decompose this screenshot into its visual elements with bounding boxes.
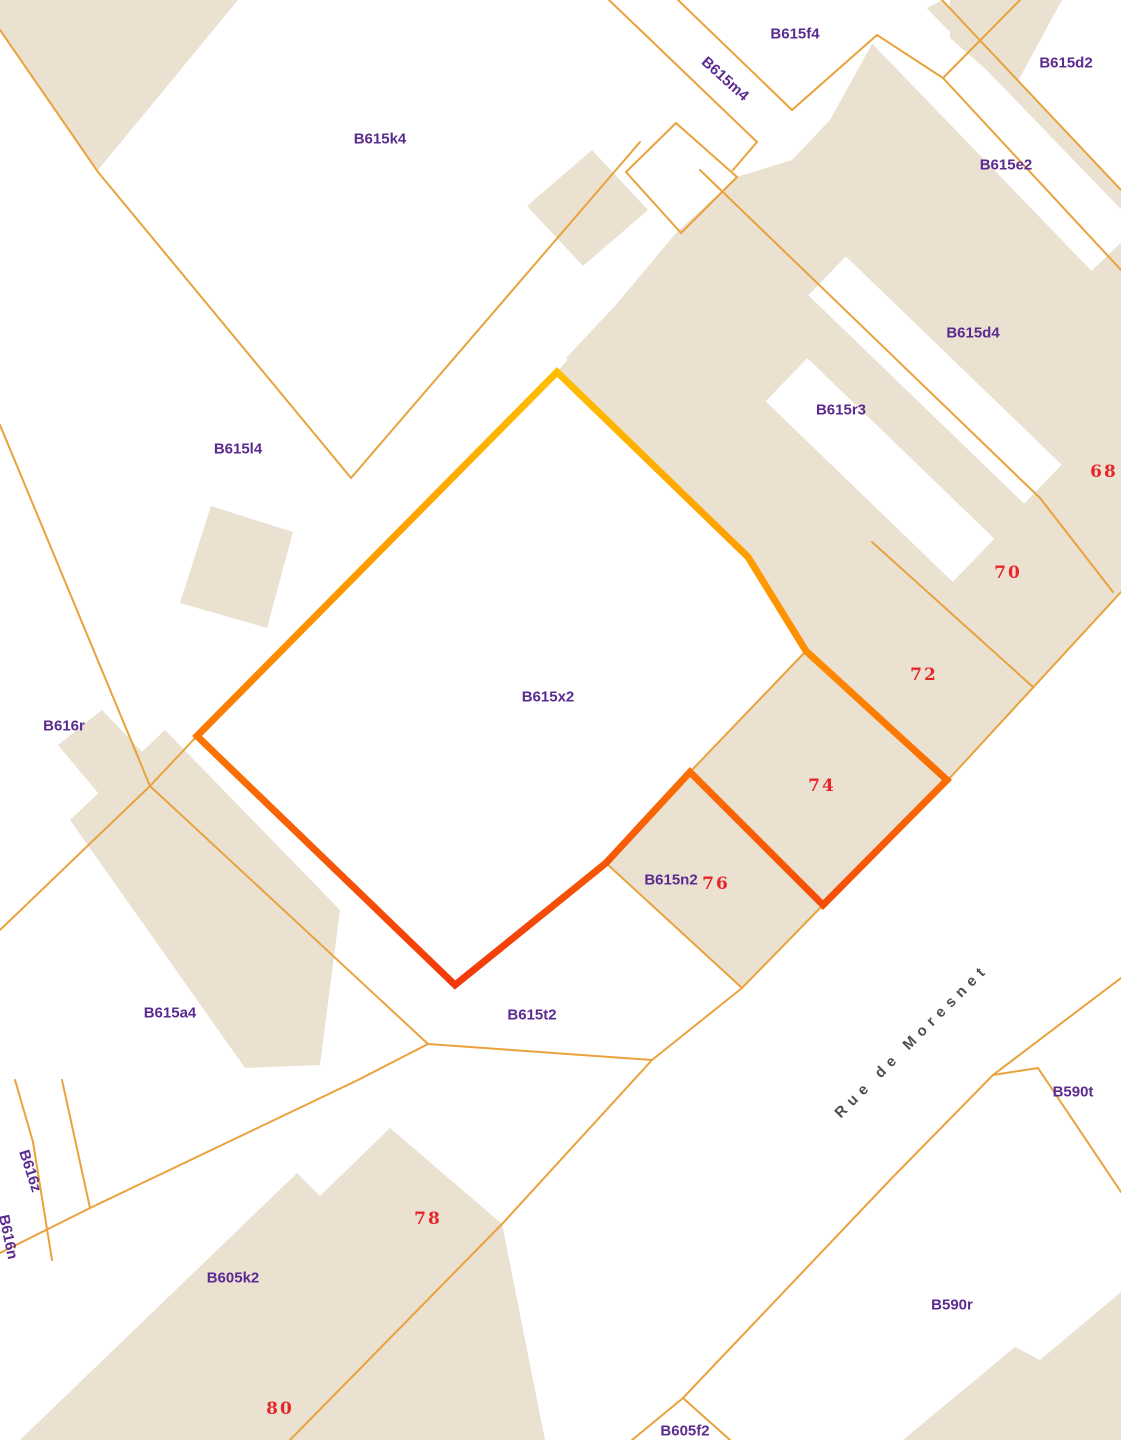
parcel-label-B590t: B590t bbox=[1053, 1084, 1094, 1101]
parcel-label-B615d4: B615d4 bbox=[946, 325, 1000, 342]
house-number-68: 68 bbox=[1090, 462, 1118, 482]
map-viewport: B615k4 B615f4 B615m4 B615d2 B615e2 B615d… bbox=[0, 0, 1121, 1440]
parcel-label-B615a4: B615a4 bbox=[144, 1005, 197, 1022]
house-number-72: 72 bbox=[910, 665, 938, 685]
parcel-label-B616r: B616r bbox=[43, 718, 85, 735]
parcel-label-B615k4: B615k4 bbox=[354, 131, 407, 148]
parcel-label-B615x2: B615x2 bbox=[522, 689, 575, 706]
parcel-label-B590r: B590r bbox=[931, 1297, 973, 1314]
house-number-70: 70 bbox=[994, 563, 1022, 583]
house-number-78: 78 bbox=[414, 1209, 442, 1229]
parcel-label-B615f4: B615f4 bbox=[770, 26, 820, 43]
parcel-label-B615d2: B615d2 bbox=[1039, 55, 1092, 72]
parcel-label-B615l4: B615l4 bbox=[214, 441, 263, 458]
parcel-label-B615e2: B615e2 bbox=[980, 157, 1033, 174]
parcel-label-B615r3: B615r3 bbox=[816, 402, 866, 419]
parcel-label-B605k2: B605k2 bbox=[207, 1270, 260, 1287]
house-number-76: 76 bbox=[702, 874, 730, 894]
house-number-80: 80 bbox=[266, 1399, 294, 1419]
parcel-label-B605f2: B605f2 bbox=[660, 1423, 709, 1440]
parcel-label-B615t2: B615t2 bbox=[507, 1007, 556, 1024]
parcel-label-B615n2: B615n2 bbox=[644, 872, 697, 889]
map-canvas[interactable]: B615k4 B615f4 B615m4 B615d2 B615e2 B615d… bbox=[0, 0, 1121, 1440]
house-number-74: 74 bbox=[808, 776, 836, 796]
